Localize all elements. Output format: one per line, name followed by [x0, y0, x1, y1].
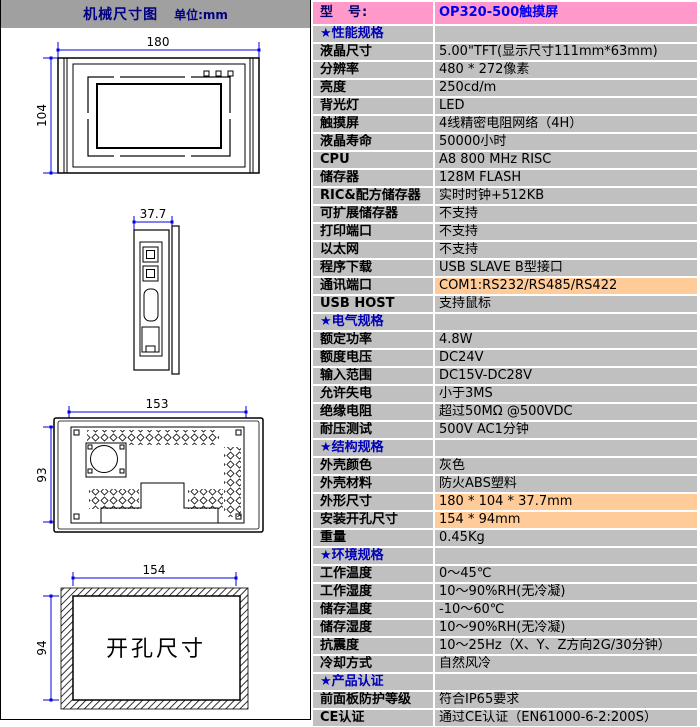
- spec-table-row: 冷却方式 自然风冷: [313, 656, 697, 672]
- spec-value: USB SLAVE B型接口: [435, 260, 697, 276]
- spec-table-row: 分辨率 480 * 272像素: [313, 62, 697, 78]
- spec-table-row: 安装开孔尺寸 154 * 94mm: [313, 512, 697, 528]
- spec-label: 型 号:: [313, 2, 433, 24]
- spec-table-row: ★产品认证: [313, 674, 697, 690]
- spec-table-row: 额度电压 DC24V: [313, 350, 697, 366]
- spec-value: 通过CE认证（EN61000-6-2:200S）: [435, 710, 697, 726]
- spec-label: ★性能规格: [313, 26, 433, 42]
- spec-label: RIC&配方储存器: [313, 188, 433, 204]
- cutout-height-dimension: 94: [35, 640, 49, 655]
- spec-value: [435, 26, 697, 42]
- spec-label: 液晶尺寸: [313, 44, 433, 60]
- spec-table-row: 程序下载 USB SLAVE B型接口: [313, 260, 697, 276]
- spec-value: 防火ABS塑料: [435, 476, 697, 492]
- spec-table-row: 外壳颜色 灰色: [313, 458, 697, 474]
- spec-table-row: 允许失电 小于3MS: [313, 386, 697, 402]
- spec-table-row: 可扩展储存器 不支持: [313, 206, 697, 222]
- spec-table-row: 前面板防护等级 符合IP65要求: [313, 692, 697, 708]
- spec-value: [435, 548, 697, 564]
- spec-value: DC24V: [435, 350, 697, 366]
- spec-value: [435, 440, 697, 456]
- cutout-view-drawing: 154 94 开孔尺寸: [35, 563, 248, 709]
- front-view-drawing: 180 104: [35, 35, 261, 175]
- spec-label: 前面板防护等级: [313, 692, 433, 708]
- spec-label: 额度电压: [313, 350, 433, 366]
- spec-label: 允许失电: [313, 386, 433, 402]
- spec-value: COM1:RS232/RS485/RS422: [435, 278, 697, 294]
- spec-value: 480 * 272像素: [435, 62, 697, 78]
- spec-value: OP320-500触摸屏: [435, 2, 697, 24]
- spec-label: 工作湿度: [313, 584, 433, 600]
- spec-label: ★结构规格: [313, 440, 433, 456]
- side-depth-dimension: 37.7: [140, 207, 167, 221]
- spec-label: ★产品认证: [313, 674, 433, 690]
- spec-label: ★环境规格: [313, 548, 433, 564]
- front-height-dimension: 104: [35, 104, 49, 127]
- spec-table-row: 通讯端口 COM1:RS232/RS485/RS422: [313, 278, 697, 294]
- spec-value: [435, 314, 697, 330]
- spec-table-row: ★环境规格: [313, 548, 697, 564]
- spec-label: 打印端口: [313, 224, 433, 240]
- spec-table-row: 以太网 不支持: [313, 242, 697, 258]
- panel-header: 机械尺寸图 单位:mm: [1, 0, 310, 28]
- spec-table: 型 号: OP320-500触摸屏 ★性能规格 液晶尺寸 5.00"TFT(显示…: [313, 0, 700, 727]
- spec-table-row: 绝缘电阻 超过50MΩ @500VDC: [313, 404, 697, 420]
- spec-table-row: ★结构规格: [313, 440, 697, 456]
- spec-label: 程序下载: [313, 260, 433, 276]
- spec-value: 不支持: [435, 224, 697, 240]
- spec-label: ★电气规格: [313, 314, 433, 330]
- spec-label: 输入范围: [313, 368, 433, 384]
- spec-label: CE认证: [313, 710, 433, 726]
- spec-table-row: 液晶寿命 50000小时: [313, 134, 697, 150]
- spec-table-row: CPU A8 800 MHz RISC: [313, 152, 697, 168]
- spec-label: 冷却方式: [313, 656, 433, 672]
- spec-value: 小于3MS: [435, 386, 697, 402]
- rear-view-drawing: 153 93: [35, 397, 263, 532]
- spec-table-row: 抗震度 10～25Hz（X、Y、Z方向2G/30分钟）: [313, 638, 697, 654]
- spec-table-row: 储存湿度 10～90%RH(无冷凝): [313, 620, 697, 636]
- spec-label: 分辨率: [313, 62, 433, 78]
- spec-value: 0～45℃: [435, 566, 697, 582]
- spec-table-row: 触摸屏 4线精密电阻网络（4H）: [313, 116, 697, 132]
- spec-table-row: 工作温度 0～45℃: [313, 566, 697, 582]
- mechanical-drawings-svg: 180 104: [1, 28, 310, 719]
- spec-value: 10～90%RH(无冷凝): [435, 620, 697, 636]
- spec-value: 180 * 104 * 37.7mm: [435, 494, 697, 510]
- spec-value: 4.8W: [435, 332, 697, 348]
- spec-value: 10～25Hz（X、Y、Z方向2G/30分钟）: [435, 638, 697, 654]
- spec-value: 4线精密电阻网络（4H）: [435, 116, 697, 132]
- spec-label: 抗震度: [313, 638, 433, 654]
- spec-label: 背光灯: [313, 98, 433, 114]
- spec-label: 耐压测试: [313, 422, 433, 438]
- spec-label: 安装开孔尺寸: [313, 512, 433, 528]
- rear-battery-holder: [86, 443, 126, 477]
- spec-value: 128M FLASH: [435, 170, 697, 186]
- spec-table-row: CE认证 通过CE认证（EN61000-6-2:200S）: [313, 710, 697, 726]
- spec-table-row: 储存温度 -10～60℃: [313, 602, 697, 618]
- mechanical-drawing-panel: 机械尺寸图 单位:mm 180 104: [0, 0, 311, 720]
- spec-table-row: 亮度 250cd/m: [313, 80, 697, 96]
- spec-table-row: 输入范围 DC15V-DC28V: [313, 368, 697, 384]
- spec-value: 5.00"TFT(显示尺寸111mm*63mm): [435, 44, 697, 60]
- spec-value: 符合IP65要求: [435, 692, 697, 708]
- spec-table-row: 外形尺寸 180 * 104 * 37.7mm: [313, 494, 697, 510]
- spec-value: 自然风冷: [435, 656, 697, 672]
- spec-label: 额定功率: [313, 332, 433, 348]
- spec-table-row: 储存器 128M FLASH: [313, 170, 697, 186]
- spec-label: CPU: [313, 152, 433, 168]
- spec-value: 不支持: [435, 206, 697, 222]
- spec-value: A8 800 MHz RISC: [435, 152, 697, 168]
- spec-table-row: 背光灯 LED: [313, 98, 697, 114]
- spec-value: 超过50MΩ @500VDC: [435, 404, 697, 420]
- spec-label: 亮度: [313, 80, 433, 96]
- spec-label: 触摸屏: [313, 116, 433, 132]
- spec-label: 工作温度: [313, 566, 433, 582]
- spec-value: 154 * 94mm: [435, 512, 697, 528]
- spec-label: 以太网: [313, 242, 433, 258]
- rear-height-dimension: 93: [35, 467, 49, 482]
- spec-table-row: 耐压测试 500V AC1分钟: [313, 422, 697, 438]
- front-width-dimension: 180: [147, 35, 170, 49]
- spec-label: 储存湿度: [313, 620, 433, 636]
- front-screen-area: [97, 84, 221, 148]
- panel-unit-label: 单位:mm: [174, 6, 228, 23]
- spec-value: 250cd/m: [435, 80, 697, 96]
- spec-label: 储存器: [313, 170, 433, 186]
- cutout-label: 开孔尺寸: [106, 637, 206, 662]
- panel-title: 机械尺寸图: [83, 4, 158, 24]
- spec-label: 外壳材料: [313, 476, 433, 492]
- front-led-indicators: [204, 71, 233, 76]
- spec-value: 10～90%RH(无冷凝): [435, 584, 697, 600]
- spec-table-row: 额定功率 4.8W: [313, 332, 697, 348]
- spec-value: DC15V-DC28V: [435, 368, 697, 384]
- spec-value: 50000小时: [435, 134, 697, 150]
- spec-label: 绝缘电阻: [313, 404, 433, 420]
- spec-table-row: RIC&配方储存器 实时时钟+512KB: [313, 188, 697, 204]
- spec-label: 通讯端口: [313, 278, 433, 294]
- spec-table-row: 打印端口 不支持: [313, 224, 697, 240]
- spec-value: 实时时钟+512KB: [435, 188, 697, 204]
- spec-label: 液晶寿命: [313, 134, 433, 150]
- spec-table-row: ★性能规格: [313, 26, 697, 42]
- spec-table-row: 外壳材料 防火ABS塑料: [313, 476, 697, 492]
- spec-label: 外壳颜色: [313, 458, 433, 474]
- spec-value: 0.45Kg: [435, 530, 697, 546]
- spec-value: -10～60℃: [435, 602, 697, 618]
- spec-label: 储存温度: [313, 602, 433, 618]
- spec-table-row: 液晶尺寸 5.00"TFT(显示尺寸111mm*63mm): [313, 44, 697, 60]
- spec-table-row: USB HOST 支持鼠标: [313, 296, 697, 312]
- spec-table-row: 工作湿度 10～90%RH(无冷凝): [313, 584, 697, 600]
- spec-table-row: 重量 0.45Kg: [313, 530, 697, 546]
- spec-value: 灰色: [435, 458, 697, 474]
- spec-label: 重量: [313, 530, 433, 546]
- spec-label: 可扩展储存器: [313, 206, 433, 222]
- spec-label: 外形尺寸: [313, 494, 433, 510]
- side-view-drawing: 37.7: [133, 207, 180, 374]
- cutout-width-dimension: 154: [143, 563, 166, 577]
- rear-width-dimension: 153: [146, 397, 169, 411]
- spec-value: [435, 674, 697, 690]
- spec-table-row: 型 号: OP320-500触摸屏: [313, 2, 697, 24]
- spec-table-row: ★电气规格: [313, 314, 697, 330]
- spec-value: 不支持: [435, 242, 697, 258]
- spec-label: USB HOST: [313, 296, 433, 312]
- spec-value: 支持鼠标: [435, 296, 697, 312]
- spec-value: 500V AC1分钟: [435, 422, 697, 438]
- spec-value: LED: [435, 98, 697, 114]
